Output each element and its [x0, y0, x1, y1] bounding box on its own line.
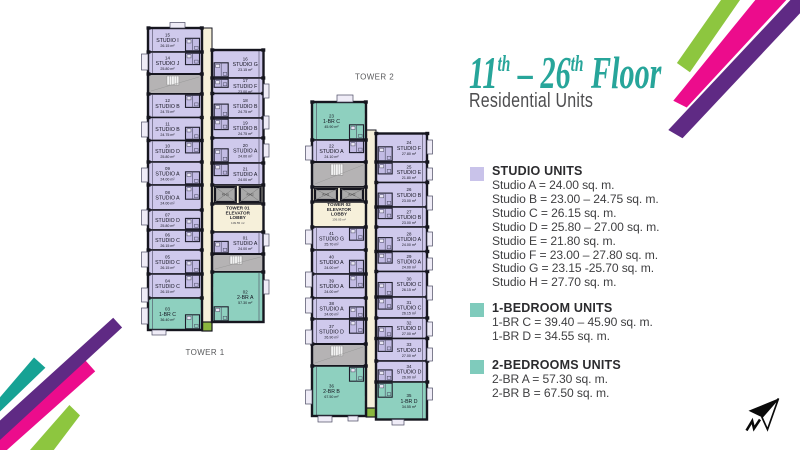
- svg-text:24.00 m²: 24.00 m²: [238, 247, 253, 251]
- svg-text:35: 35: [407, 393, 412, 398]
- svg-text:67.50 m²: 67.50 m²: [324, 395, 339, 399]
- svg-text:16: 16: [243, 56, 248, 61]
- svg-text:25.80 m²: 25.80 m²: [160, 224, 175, 228]
- svg-text:07: 07: [165, 212, 170, 217]
- svg-text:04: 04: [165, 278, 170, 283]
- svg-text:26.15 m²: 26.15 m²: [160, 44, 175, 48]
- svg-text:33: 33: [407, 342, 412, 347]
- svg-text:30: 30: [407, 277, 412, 282]
- svg-text:P2-02: P2-02: [349, 193, 356, 197]
- svg-text:TOWER 2: TOWER 2: [355, 73, 394, 82]
- svg-text:02: 02: [243, 289, 248, 294]
- svg-text:45.90 m²: 45.90 m²: [324, 125, 339, 129]
- svg-text:31: 31: [407, 300, 412, 305]
- svg-text:05: 05: [165, 254, 170, 259]
- svg-text:P2-02: P2-02: [247, 193, 254, 197]
- svg-text:25.70 m²: 25.70 m²: [324, 243, 339, 247]
- svg-text:109.55 m²: 109.55 m²: [231, 221, 245, 225]
- svg-text:03: 03: [165, 306, 170, 311]
- svg-text:27.80 m²: 27.80 m²: [402, 152, 417, 156]
- svg-text:24.00 m²: 24.00 m²: [160, 202, 175, 206]
- svg-text:23.15 m²: 23.15 m²: [238, 68, 253, 72]
- svg-text:24.75 m²: 24.75 m²: [160, 133, 175, 137]
- svg-text:22: 22: [329, 143, 334, 148]
- svg-text:24.00 m²: 24.00 m²: [160, 178, 175, 182]
- svg-text:36.40 m²: 36.40 m²: [160, 318, 175, 322]
- svg-text:P2-01: P2-01: [222, 193, 229, 197]
- svg-text:26.15 m²: 26.15 m²: [160, 244, 175, 248]
- svg-text:27.00 m²: 27.00 m²: [402, 332, 417, 336]
- svg-text:18: 18: [243, 98, 248, 103]
- svg-text:26.15 m²: 26.15 m²: [402, 288, 417, 292]
- svg-text:11: 11: [165, 121, 170, 126]
- svg-text:23.00 m²: 23.00 m²: [402, 199, 417, 203]
- svg-text:24.75 m²: 24.75 m²: [238, 110, 253, 114]
- svg-text:LOBBY: LOBBY: [331, 212, 347, 217]
- svg-text:34.55 m²: 34.55 m²: [402, 405, 417, 409]
- svg-text:25.80 m²: 25.80 m²: [160, 155, 175, 159]
- svg-text:24.00 m²: 24.00 m²: [238, 178, 253, 182]
- svg-text:39: 39: [329, 278, 334, 283]
- svg-text:32: 32: [407, 321, 412, 326]
- svg-text:24.00 m²: 24.00 m²: [238, 155, 253, 159]
- svg-text:19: 19: [243, 120, 248, 125]
- svg-text:23.00 m²: 23.00 m²: [402, 221, 417, 225]
- svg-text:21: 21: [243, 166, 248, 171]
- svg-text:23: 23: [329, 113, 334, 118]
- svg-text:06: 06: [165, 232, 170, 237]
- svg-text:26.15 m²: 26.15 m²: [402, 312, 417, 316]
- svg-text:21.80 m²: 21.80 m²: [402, 176, 417, 180]
- svg-text:LOBBY: LOBBY: [230, 215, 246, 220]
- svg-text:27: 27: [407, 209, 412, 214]
- svg-text:P2-01: P2-01: [323, 193, 330, 197]
- svg-text:14: 14: [165, 55, 170, 60]
- svg-text:24.75 m²: 24.75 m²: [238, 132, 253, 136]
- svg-text:TOWER 1: TOWER 1: [185, 348, 224, 357]
- svg-text:10: 10: [165, 144, 170, 149]
- svg-text:25: 25: [407, 165, 412, 170]
- svg-text:26.15 m²: 26.15 m²: [160, 266, 175, 270]
- svg-text:17: 17: [243, 78, 248, 83]
- svg-text:24.00 m²: 24.00 m²: [402, 243, 417, 247]
- svg-text:20: 20: [243, 143, 248, 148]
- svg-text:26.90 m²: 26.90 m²: [402, 376, 417, 380]
- svg-text:36: 36: [329, 383, 334, 388]
- svg-text:24.00 m²: 24.00 m²: [324, 313, 339, 317]
- svg-text:29: 29: [407, 254, 412, 259]
- svg-text:57.30 m²: 57.30 m²: [238, 301, 253, 305]
- svg-text:24.10 m²: 24.10 m²: [324, 155, 339, 159]
- svg-text:12: 12: [165, 98, 170, 103]
- svg-text:27.00 m²: 27.00 m²: [402, 354, 417, 358]
- svg-text:34: 34: [407, 364, 412, 369]
- svg-text:40: 40: [329, 254, 334, 259]
- svg-text:26: 26: [407, 187, 412, 192]
- svg-text:24.75 m²: 24.75 m²: [160, 110, 175, 114]
- svg-text:41: 41: [329, 231, 334, 236]
- svg-text:24: 24: [407, 140, 412, 145]
- svg-text:37: 37: [329, 324, 334, 329]
- svg-text:26.90 m²: 26.90 m²: [324, 336, 339, 340]
- svg-text:24.00 m²: 24.00 m²: [324, 290, 339, 294]
- svg-text:24.00 m²: 24.00 m²: [402, 266, 417, 270]
- svg-text:28: 28: [407, 232, 412, 237]
- svg-text:25.80 m²: 25.80 m²: [160, 67, 175, 71]
- svg-text:15: 15: [165, 32, 170, 37]
- svg-text:38: 38: [329, 301, 334, 306]
- svg-text:24.00 m²: 24.00 m²: [324, 266, 339, 270]
- svg-text:09: 09: [165, 166, 170, 171]
- svg-text:136.05 m²: 136.05 m²: [332, 217, 346, 221]
- svg-text:26.15 m²: 26.15 m²: [160, 290, 175, 294]
- svg-text:08: 08: [165, 190, 170, 195]
- svg-text:01: 01: [243, 235, 248, 240]
